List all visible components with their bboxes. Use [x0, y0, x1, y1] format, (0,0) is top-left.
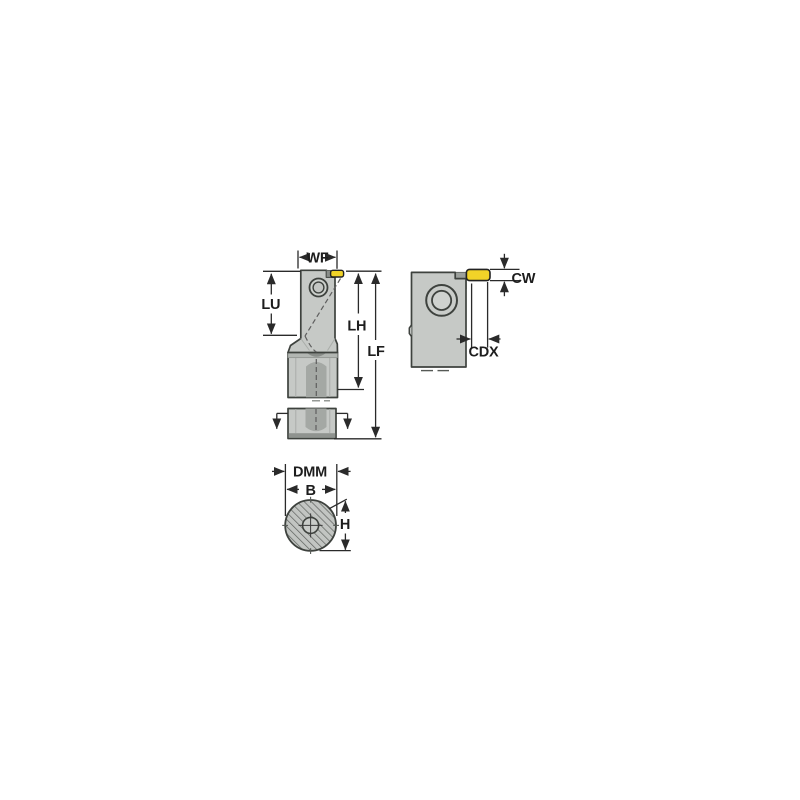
- wf-label: WF: [306, 250, 328, 266]
- technical-drawing-page: WF LU LH LF: [0, 0, 800, 800]
- side-notch: [409, 325, 411, 337]
- dmm-dimension: DMM: [272, 465, 351, 481]
- cw-dimension: CW: [490, 254, 536, 296]
- cw-label: CW: [512, 271, 536, 287]
- shank-end-section: [288, 409, 336, 439]
- lu-label: LU: [261, 297, 280, 313]
- shank-upper-section: [288, 353, 338, 401]
- ext-line: [329, 499, 347, 509]
- cutting-insert-front: [466, 269, 490, 280]
- shank-end-bottom-band: [289, 433, 335, 438]
- lu-dimension: LU: [261, 271, 300, 335]
- front-view: CW CDX: [409, 254, 535, 371]
- cdx-label: CDX: [468, 345, 499, 361]
- lf-label: LF: [367, 344, 385, 360]
- h-label: H: [340, 517, 350, 533]
- shank-cross-section: DMM B H: [272, 464, 351, 554]
- wf-dimension: WF: [298, 250, 337, 269]
- side-view: WF LU LH LF: [261, 250, 385, 439]
- dmm-label: DMM: [293, 465, 327, 481]
- cutting-insert: [331, 270, 344, 277]
- clamp-screw-hole-inner: [313, 282, 324, 293]
- lh-dimension: LH: [338, 274, 367, 390]
- b-dimension: B: [287, 483, 335, 499]
- tool-dimension-diagram: WF LU LH LF: [0, 0, 800, 800]
- lh-label: LH: [347, 319, 366, 335]
- b-label: B: [305, 483, 315, 499]
- screw-hole-front-inner: [432, 291, 451, 310]
